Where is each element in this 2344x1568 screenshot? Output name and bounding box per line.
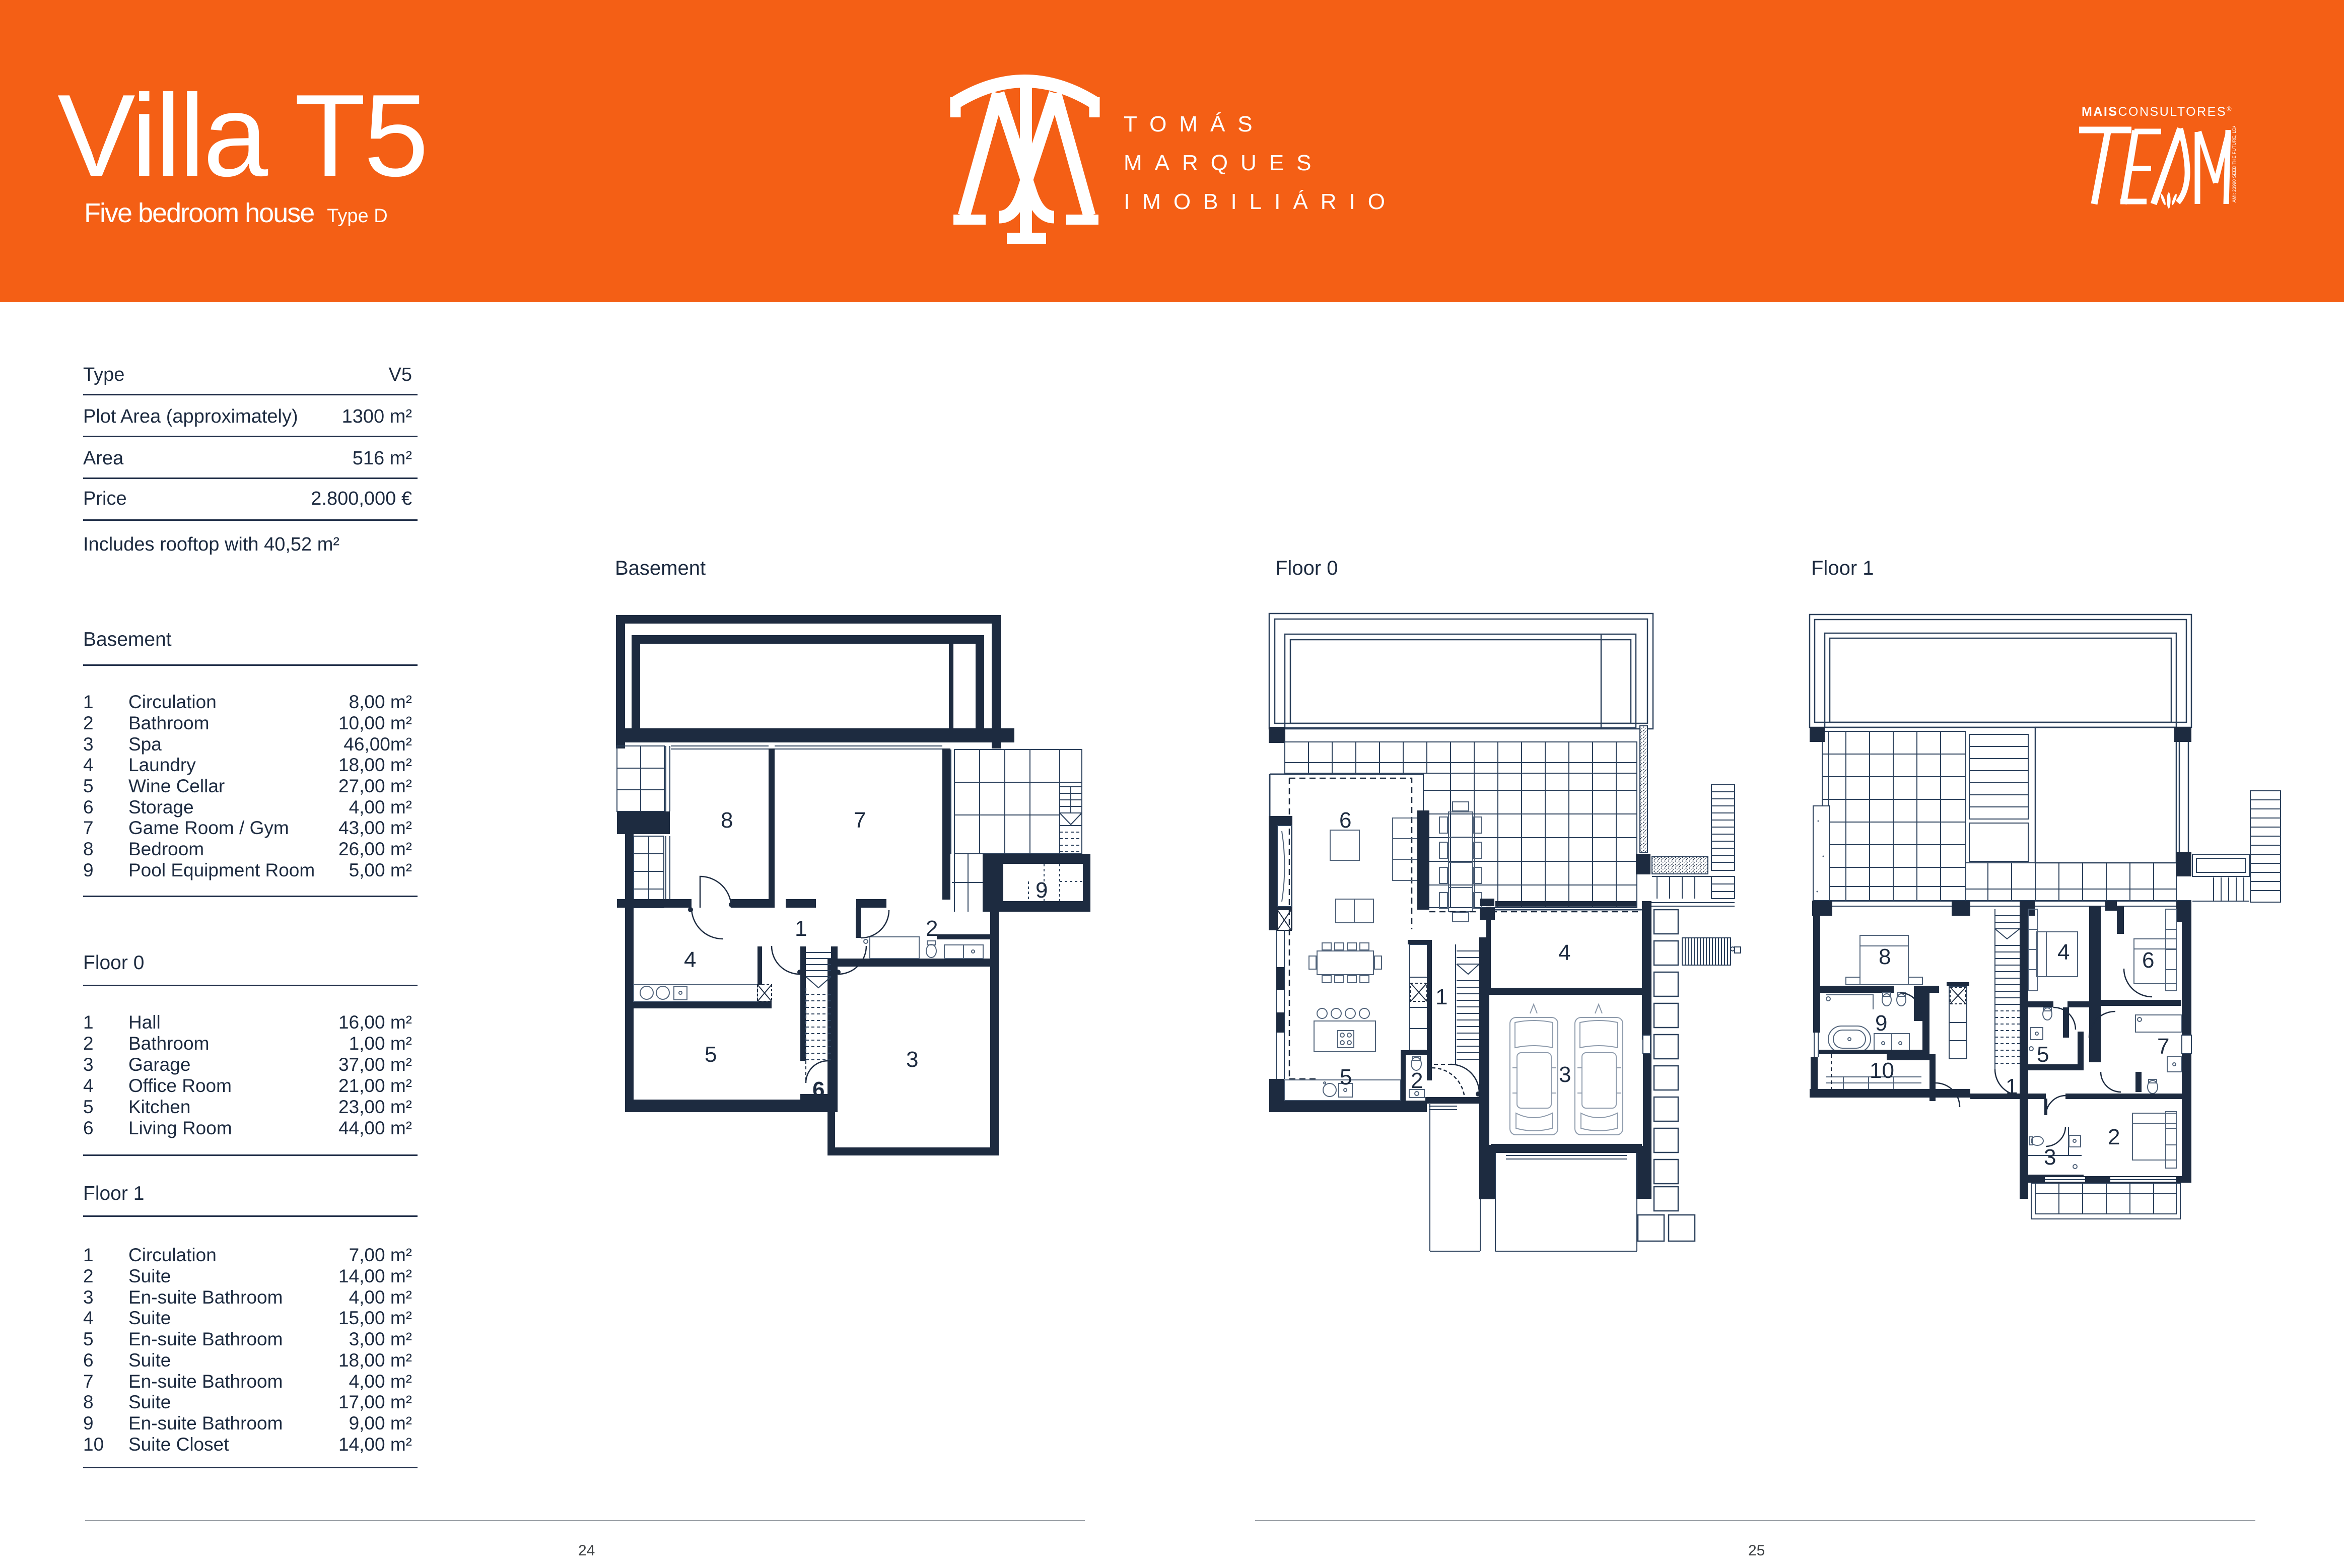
svg-text:1: 1 xyxy=(1435,985,1447,1009)
svg-text:7: 7 xyxy=(854,808,866,833)
svg-text:3: 3 xyxy=(2044,1145,2056,1170)
svg-text:6: 6 xyxy=(812,1077,824,1102)
svg-text:2: 2 xyxy=(926,916,938,941)
svg-text:1: 1 xyxy=(795,916,807,941)
svg-text:AMI: 23990 SEED THE FUTURE, L: AMI: 23990 SEED THE FUTURE, LDA xyxy=(2232,126,2237,202)
svg-text:2: 2 xyxy=(2108,1125,2120,1149)
svg-text:5: 5 xyxy=(1340,1065,1352,1089)
svg-text:5: 5 xyxy=(2037,1042,2049,1067)
svg-text:1: 1 xyxy=(2006,1074,2018,1099)
svg-text:3: 3 xyxy=(1559,1062,1571,1087)
svg-text:8: 8 xyxy=(721,808,733,833)
svg-text:6: 6 xyxy=(1339,808,1351,833)
svg-text:8: 8 xyxy=(1879,944,1891,969)
svg-text:10: 10 xyxy=(1870,1058,1894,1083)
svg-text:7: 7 xyxy=(2157,1034,2169,1059)
svg-text:3: 3 xyxy=(906,1047,918,1072)
svg-text:4: 4 xyxy=(1558,940,1570,965)
svg-text:5: 5 xyxy=(705,1042,717,1067)
svg-text:6: 6 xyxy=(2142,948,2154,973)
svg-text:4: 4 xyxy=(684,947,696,972)
svg-text:4: 4 xyxy=(2057,940,2070,965)
svg-text:9: 9 xyxy=(1036,878,1048,903)
svg-text:9: 9 xyxy=(1875,1011,1887,1036)
svg-text:2: 2 xyxy=(1411,1068,1423,1093)
